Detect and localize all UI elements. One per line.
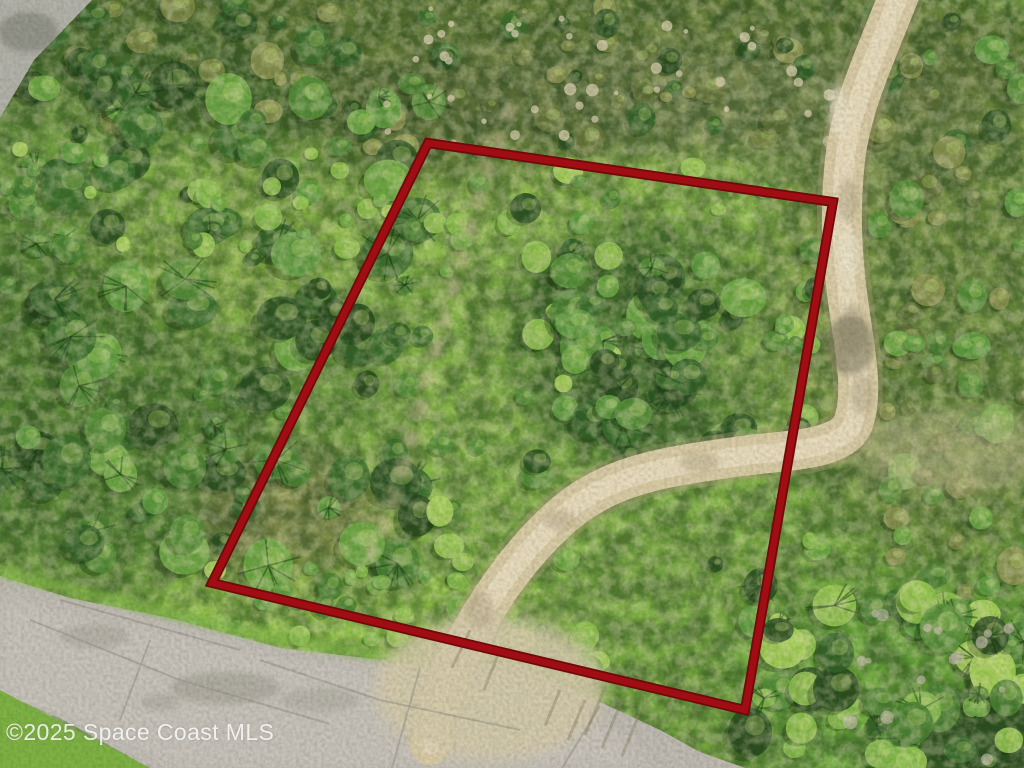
aerial-photo: ©2025 Space Coast MLS <box>0 0 1024 768</box>
aerial-photo-canvas <box>0 0 1024 768</box>
